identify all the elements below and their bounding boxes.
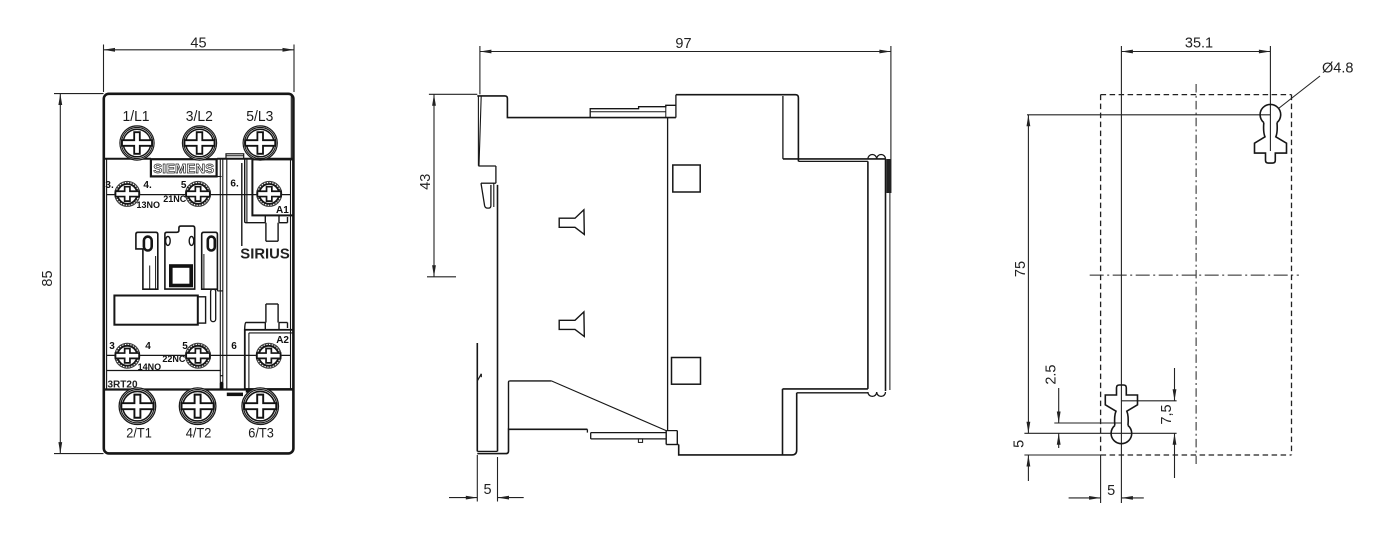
svg-text:1/L1: 1/L1 [123, 109, 150, 125]
svg-text:13NO: 13NO [137, 200, 161, 210]
svg-text:Ø4.8: Ø4.8 [1322, 61, 1353, 77]
svg-text:SIRIUS: SIRIUS [240, 245, 289, 262]
svg-text:97: 97 [675, 36, 691, 52]
svg-text:A1: A1 [276, 205, 289, 216]
svg-text:4.: 4. [143, 180, 152, 191]
svg-text:85: 85 [40, 270, 56, 286]
svg-text:5.: 5. [181, 180, 190, 191]
svg-text:45: 45 [190, 35, 206, 51]
svg-text:4/T2: 4/T2 [186, 426, 212, 441]
svg-text:5: 5 [182, 341, 188, 352]
svg-text:5: 5 [1011, 440, 1027, 448]
svg-text:3: 3 [109, 341, 115, 352]
svg-text:75: 75 [1013, 261, 1029, 277]
svg-text:5: 5 [483, 482, 491, 498]
svg-text:A2: A2 [276, 335, 289, 346]
svg-text:5/L3: 5/L3 [246, 109, 273, 125]
svg-text:SIEMENS: SIEMENS [153, 162, 214, 177]
svg-text:7,5: 7,5 [1159, 404, 1175, 424]
svg-text:3/L2: 3/L2 [186, 109, 213, 125]
svg-text:6.: 6. [230, 179, 239, 190]
svg-text:6: 6 [231, 341, 237, 352]
svg-text:4: 4 [145, 341, 151, 352]
svg-text:35.1: 35.1 [1185, 36, 1213, 52]
svg-text:22NC: 22NC [162, 354, 186, 364]
svg-text:21NC: 21NC [163, 194, 187, 204]
svg-text:2.5: 2.5 [1043, 365, 1059, 385]
svg-text:6/T3: 6/T3 [248, 426, 273, 441]
svg-text:2/T1: 2/T1 [126, 426, 152, 441]
svg-text:5: 5 [1107, 483, 1115, 499]
svg-text:3.: 3. [105, 180, 114, 191]
svg-text:43: 43 [418, 174, 434, 190]
